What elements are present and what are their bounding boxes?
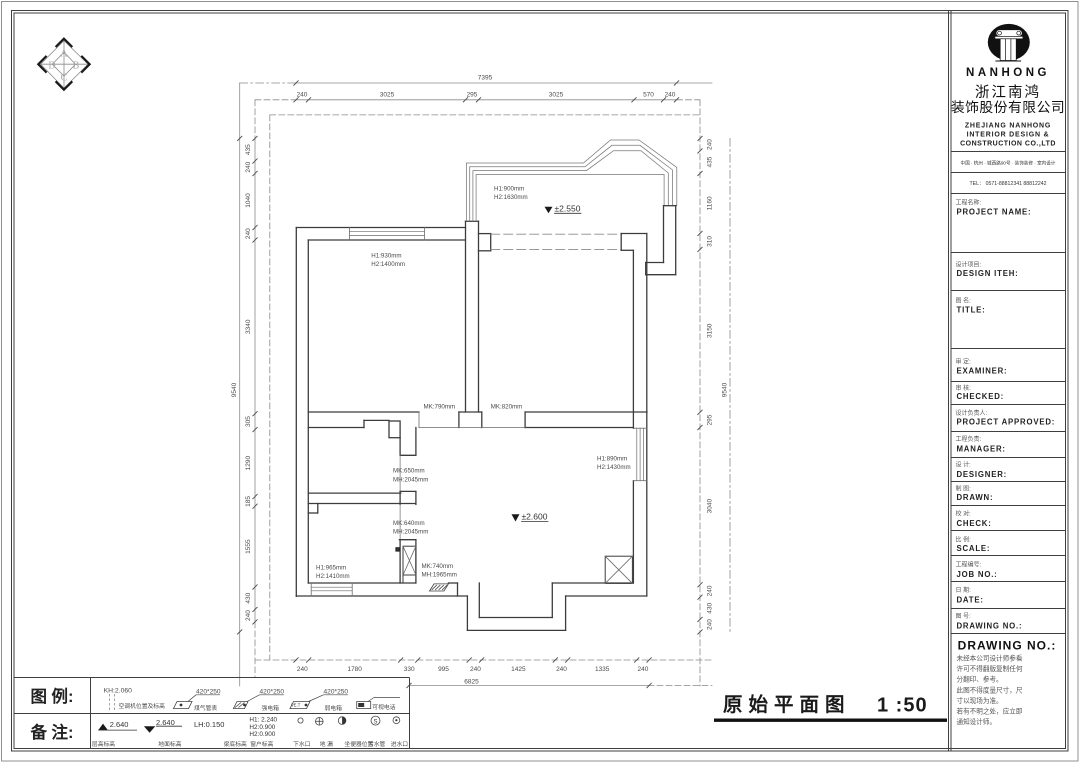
svg-text:7395: 7395: [478, 75, 493, 82]
svg-text:若有不明之处，应立即: 若有不明之处，应立即: [957, 707, 1023, 716]
svg-text:H1:930mm: H1:930mm: [371, 253, 401, 260]
svg-text:240: 240: [470, 666, 481, 673]
svg-text:TITLE:: TITLE:: [957, 306, 986, 315]
svg-text:2.640: 2.640: [156, 718, 175, 727]
svg-text:240: 240: [556, 666, 567, 673]
svg-text:进水口: 进水口: [391, 740, 409, 748]
svg-text:435: 435: [707, 156, 714, 167]
svg-text:浙江南鸿: 浙江南鸿: [975, 84, 1041, 101]
svg-text:MH:2045mm: MH:2045mm: [393, 529, 428, 536]
svg-text:弱电箱: 弱电箱: [325, 704, 343, 712]
svg-text:H1:965mm: H1:965mm: [316, 565, 346, 572]
svg-text:窗户标高: 窗户标高: [250, 740, 273, 748]
svg-text:6825: 6825: [464, 678, 479, 685]
svg-text:图 名:: 图 名:: [956, 297, 972, 305]
svg-text:430: 430: [707, 602, 714, 613]
svg-text:工程名称:: 工程名称:: [956, 199, 982, 207]
svg-text:装饰股份有限公司: 装饰股份有限公司: [951, 100, 1065, 115]
svg-text:地面标高: 地面标高: [158, 740, 181, 748]
svg-text:240: 240: [665, 92, 676, 99]
svg-text:420*250: 420*250: [260, 689, 285, 696]
svg-text:H1:900mm: H1:900mm: [494, 186, 524, 193]
svg-text:3025: 3025: [380, 92, 395, 99]
svg-text:日 期:: 日 期:: [956, 586, 972, 594]
svg-text:校 对:: 校 对:: [956, 510, 972, 518]
svg-text:工程编号:: 工程编号:: [956, 561, 982, 569]
svg-text:MH:1965mm: MH:1965mm: [422, 572, 457, 579]
svg-text:240: 240: [297, 92, 308, 99]
svg-text:JOB NO.:: JOB NO.:: [957, 570, 998, 579]
svg-text:图 例:: 图 例:: [30, 686, 73, 706]
svg-text:梁底标高: 梁底标高: [224, 740, 247, 748]
svg-text:中国 · 杭州 · 城西路90号 · 装饰装修 · 室内设计: 中国 · 杭州 · 城西路90号 · 装饰装修 · 室内设计: [961, 160, 1056, 167]
svg-text:PROJECT NAME:: PROJECT NAME:: [957, 208, 1032, 217]
svg-text:审 定:: 审 定:: [956, 358, 972, 366]
svg-text:435: 435: [245, 144, 252, 155]
svg-text:240: 240: [637, 666, 648, 673]
svg-text:H1: 2.240: H1: 2.240: [249, 717, 277, 724]
svg-text:±2.600: ±2.600: [522, 512, 548, 522]
svg-text:S: S: [373, 719, 377, 725]
svg-text:制 图:: 制 图:: [956, 485, 972, 493]
svg-text:MH:2045mm: MH:2045mm: [393, 477, 428, 484]
svg-text:许可不得翻版复制任何: 许可不得翻版复制任何: [957, 664, 1023, 673]
svg-text:MK:820mm: MK:820mm: [491, 404, 523, 411]
svg-text:备 注:: 备 注:: [29, 722, 73, 742]
svg-text:A: A: [60, 49, 68, 60]
svg-text:ZHEJIANG NANHONG: ZHEJIANG NANHONG: [965, 123, 1051, 130]
svg-text:设计负责人:: 设计负责人:: [956, 409, 988, 417]
svg-text:MANAGER:: MANAGER:: [957, 445, 1006, 454]
svg-text:H2:1410mm: H2:1410mm: [316, 573, 350, 580]
svg-text:PROJECT APPROVED:: PROJECT APPROVED:: [957, 418, 1056, 427]
svg-text:DRAWING NO.:: DRAWING NO.:: [958, 639, 1057, 653]
svg-text:420*250: 420*250: [324, 689, 349, 696]
svg-text:H2:1630mm: H2:1630mm: [494, 194, 528, 201]
svg-text:9540: 9540: [722, 382, 729, 397]
svg-text:H2:0.900: H2:0.900: [249, 724, 275, 731]
svg-text:DATE:: DATE:: [957, 596, 984, 605]
svg-text:1425: 1425: [511, 666, 526, 673]
svg-text:9540: 9540: [231, 382, 238, 397]
svg-text:240: 240: [707, 139, 714, 150]
svg-text:305: 305: [245, 416, 252, 427]
svg-text:295: 295: [467, 92, 478, 99]
svg-text:295: 295: [707, 414, 714, 425]
svg-text:2.640: 2.640: [110, 720, 129, 729]
svg-text:240: 240: [707, 619, 714, 630]
svg-text:240: 240: [245, 161, 252, 172]
svg-text:空调机位置及标高: 空调机位置及标高: [119, 702, 166, 710]
svg-text:H2:1400mm: H2:1400mm: [371, 261, 405, 268]
svg-text:B: B: [73, 61, 80, 72]
svg-text:地 漏: 地 漏: [320, 740, 333, 748]
svg-text:C: C: [61, 73, 68, 84]
svg-text:240: 240: [297, 666, 308, 673]
svg-text:240: 240: [245, 228, 252, 239]
svg-text:此图不得度量尺寸，尺: 此图不得度量尺寸，尺: [957, 685, 1023, 694]
svg-text:430: 430: [245, 592, 252, 603]
svg-text:1040: 1040: [245, 193, 252, 208]
svg-text:DESIGNER:: DESIGNER:: [957, 470, 1008, 479]
svg-text:设计项目:: 设计项目:: [956, 261, 982, 269]
svg-text:未经本公司设计师参看: 未经本公司设计师参看: [957, 654, 1023, 663]
svg-text:CHECKED:: CHECKED:: [957, 392, 1005, 401]
svg-text:420*250: 420*250: [196, 689, 221, 696]
svg-text:MK:740mm: MK:740mm: [422, 563, 454, 570]
svg-text:CONSTRUCTION CO.,LTD: CONSTRUCTION CO.,LTD: [960, 141, 1056, 148]
svg-text:3340: 3340: [245, 319, 252, 334]
svg-text:DESIGN ITEH:: DESIGN ITEH:: [957, 269, 1019, 278]
svg-text:570: 570: [643, 92, 654, 99]
svg-text:设 计:: 设 计:: [956, 461, 972, 469]
svg-text:原始平面图: 原始平面图: [723, 693, 851, 716]
svg-text:工程负责:: 工程负责:: [956, 435, 982, 443]
svg-text:比 例:: 比 例:: [956, 536, 972, 544]
svg-text:D: D: [48, 61, 55, 72]
svg-text:±2.550: ±2.550: [555, 204, 581, 214]
svg-text:下水口: 下水口: [293, 740, 311, 748]
svg-text:1780: 1780: [347, 666, 362, 673]
svg-text:可视电话: 可视电话: [372, 703, 395, 711]
svg-text:1160: 1160: [707, 196, 714, 210]
svg-text:DRAWN:: DRAWN:: [957, 493, 994, 502]
svg-text:330: 330: [404, 666, 415, 673]
svg-text:1555: 1555: [245, 539, 252, 554]
svg-text:1335: 1335: [595, 666, 610, 673]
svg-text:240: 240: [707, 585, 714, 596]
svg-text:煤气管表: 煤气管表: [194, 704, 217, 712]
svg-text:通知设计师。: 通知设计师。: [957, 717, 997, 726]
svg-text:MK:790mm: MK:790mm: [424, 404, 456, 411]
svg-text:NANHONG: NANHONG: [966, 67, 1050, 79]
svg-text:污水管: 污水管: [368, 740, 386, 748]
svg-text:KH:2.060: KH:2.060: [104, 688, 133, 695]
svg-text:图 号:: 图 号:: [956, 613, 972, 620]
svg-text:CHECK:: CHECK:: [957, 519, 992, 528]
svg-text:310: 310: [707, 236, 714, 247]
svg-text:MK:640mm: MK:640mm: [393, 520, 425, 527]
svg-text:审 核:: 审 核:: [956, 384, 972, 392]
svg-text:H1:890mm: H1:890mm: [597, 456, 627, 463]
svg-text:VE.T: VE.T: [291, 703, 301, 708]
svg-text:240: 240: [245, 610, 252, 621]
svg-text:INTERIOR DESIGN &: INTERIOR DESIGN &: [967, 132, 1050, 139]
svg-text:3150: 3150: [707, 323, 714, 338]
svg-text:MK:650mm: MK:650mm: [393, 468, 425, 475]
svg-text:LH:0.150: LH:0.150: [194, 720, 224, 729]
svg-text:强电箱: 强电箱: [262, 704, 280, 712]
svg-text:H2:1430mm: H2:1430mm: [597, 464, 631, 471]
svg-text:185: 185: [245, 496, 252, 507]
svg-text:3025: 3025: [549, 92, 564, 99]
svg-text:1290: 1290: [245, 455, 252, 470]
svg-text:3040: 3040: [707, 498, 714, 513]
svg-text:TEL： 0571-88812341 88812242: TEL： 0571-88812341 88812242: [969, 181, 1046, 187]
svg-text:H2:0.900: H2:0.900: [249, 731, 275, 738]
svg-text:层高标高: 层高标高: [92, 740, 115, 748]
svg-text:分翻印、参考。: 分翻印、参考。: [957, 675, 1003, 684]
svg-text:寸以现场为准。: 寸以现场为准。: [957, 696, 1003, 705]
svg-text:DRAWING NO.:: DRAWING NO.:: [957, 622, 1023, 631]
svg-text:1 :50: 1 :50: [877, 695, 928, 717]
svg-text:SCALE:: SCALE:: [957, 544, 991, 553]
svg-text:EXAMINER:: EXAMINER:: [957, 367, 1008, 376]
svg-text:995: 995: [438, 666, 449, 673]
